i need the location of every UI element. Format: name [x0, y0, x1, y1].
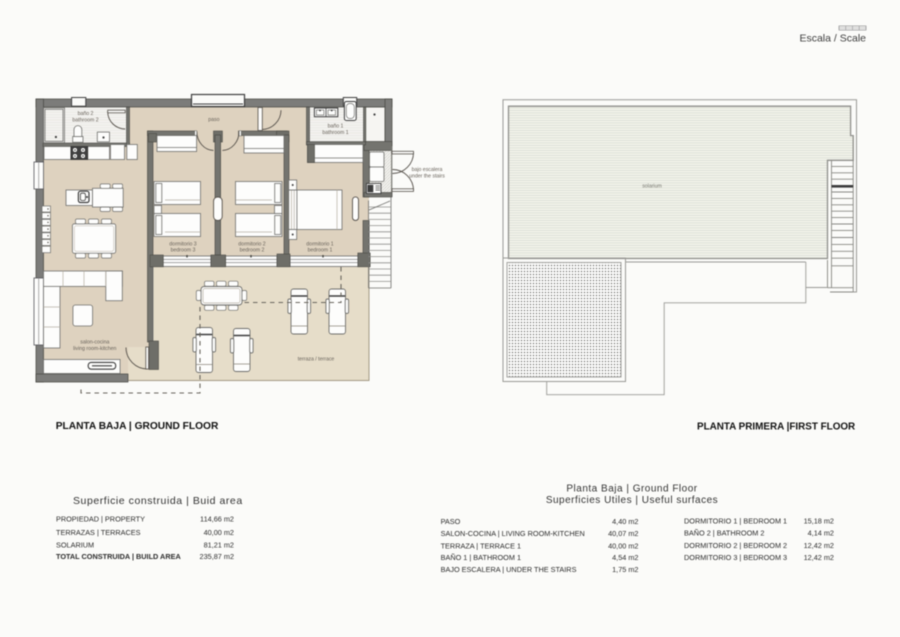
svg-text:40,00 m2: 40,00 m2	[204, 528, 234, 537]
svg-text:4,54 m2: 4,54 m2	[612, 553, 638, 562]
svg-text:15,18 m2: 15,18 m2	[804, 517, 834, 526]
svg-text:BAÑO 1 | BATHROOM 1: BAÑO 1 | BATHROOM 1	[441, 553, 521, 562]
svg-text:bedroom 1: bedroom 1	[308, 248, 333, 254]
svg-text:SOLARIUM: SOLARIUM	[56, 540, 94, 549]
svg-text:TERRAZA | TERRACE 1: TERRAZA | TERRACE 1	[441, 541, 521, 550]
svg-text:BAJO ESCALERA | UNDER THE STAI: BAJO ESCALERA | UNDER THE STAIRS	[441, 565, 577, 574]
svg-text:paso: paso	[208, 117, 219, 123]
svg-text:bajo escalera: bajo escalera	[412, 167, 443, 173]
svg-text:TOTAL CONSTRUIDA | BUILD AREA: TOTAL CONSTRUIDA | BUILD AREA	[56, 552, 181, 561]
svg-text:4,40 m2: 4,40 m2	[612, 517, 638, 526]
svg-text:bathroom 1: bathroom 1	[322, 130, 348, 136]
svg-text:40,00 m2: 40,00 m2	[608, 541, 638, 550]
svg-text:SALON-COCINA | LIVING ROOM-KIT: SALON-COCINA | LIVING ROOM-KITCHEN	[441, 529, 585, 538]
svg-text:bedroom 2: bedroom 2	[240, 248, 265, 254]
svg-text:81,21 m2: 81,21 m2	[204, 540, 234, 549]
svg-text:terraza / terrace: terraza / terrace	[298, 357, 335, 363]
svg-text:bathroom 2: bathroom 2	[72, 118, 98, 124]
svg-text:BAÑO 2 | BATHROOM 2: BAÑO 2 | BATHROOM 2	[684, 529, 764, 538]
svg-text:solarium: solarium	[642, 184, 662, 190]
svg-text:DORMITORIO 2 | BEDROOM 2: DORMITORIO 2 | BEDROOM 2	[684, 541, 787, 550]
svg-text:12,42 m2: 12,42 m2	[804, 541, 834, 550]
svg-text:PLANTA BAJA | GROUND FLOOR: PLANTA BAJA | GROUND FLOOR	[56, 421, 219, 432]
svg-text:baño 1: baño 1	[328, 124, 344, 130]
svg-text:salon-cocina: salon-cocina	[80, 340, 109, 346]
svg-text:235,87 m2: 235,87 m2	[200, 552, 234, 561]
svg-text:under the stairs: under the stairs	[409, 174, 445, 180]
svg-text:Planta Baja | Ground Floor: Planta Baja | Ground Floor	[566, 484, 697, 495]
svg-text:1,75 m2: 1,75 m2	[612, 565, 638, 574]
svg-text:bedroom 3: bedroom 3	[171, 248, 196, 254]
svg-text:living room-kitchen: living room-kitchen	[73, 346, 116, 352]
svg-text:12,42 m2: 12,42 m2	[804, 553, 834, 562]
svg-text:Escala / Scale: Escala / Scale	[799, 33, 866, 45]
svg-text:Superficies Utiles | Useful su: Superficies Utiles | Useful surfaces	[546, 495, 718, 506]
svg-text:114,66 m2: 114,66 m2	[200, 515, 234, 524]
svg-text:TERRAZAS | TERRACES: TERRAZAS | TERRACES	[56, 528, 141, 537]
svg-text:PROPIEDAD | PROPERTY: PROPIEDAD | PROPERTY	[56, 515, 145, 524]
svg-text:40,07 m2: 40,07 m2	[608, 529, 638, 538]
svg-text:Superficie construida | Buid a: Superficie construida | Buid area	[73, 495, 243, 507]
svg-text:DORMITORIO 1 | BEDROOM 1: DORMITORIO 1 | BEDROOM 1	[684, 517, 787, 526]
svg-text:PLANTA PRIMERA |FIRST FLOOR: PLANTA PRIMERA |FIRST FLOOR	[697, 422, 855, 433]
svg-text:4,14 m2: 4,14 m2	[808, 529, 834, 538]
svg-text:DORMITORIO 3 | BEDROOM 3: DORMITORIO 3 | BEDROOM 3	[684, 553, 787, 562]
svg-text:baño 2: baño 2	[78, 111, 94, 117]
svg-text:PASO: PASO	[441, 517, 461, 526]
